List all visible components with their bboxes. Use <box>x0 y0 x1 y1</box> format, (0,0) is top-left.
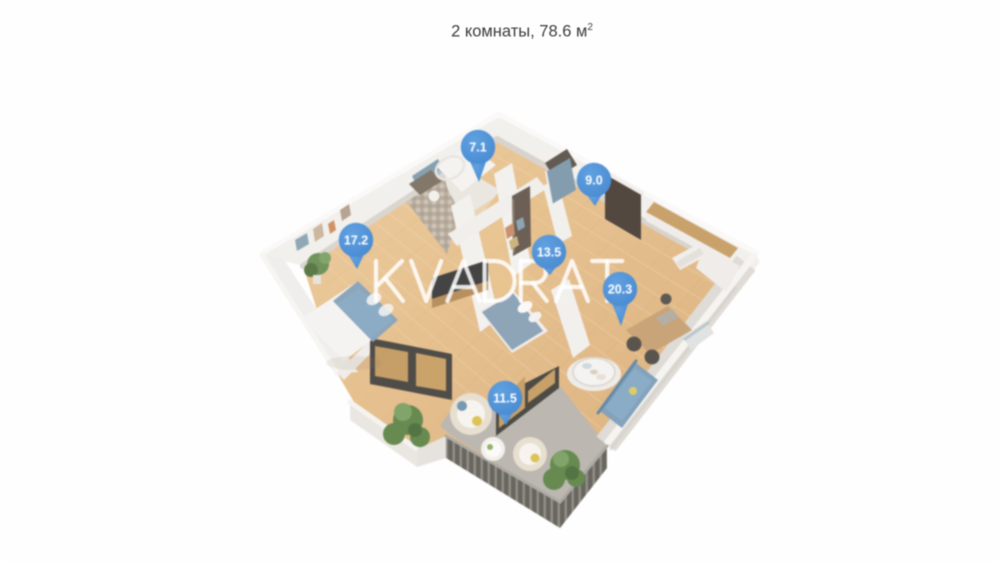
svg-text:11.5: 11.5 <box>493 392 517 406</box>
svg-text:13.5: 13.5 <box>537 246 561 260</box>
svg-text:20.3: 20.3 <box>608 283 632 297</box>
svg-text:7.1: 7.1 <box>469 141 486 155</box>
svg-text:17.2: 17.2 <box>344 234 368 248</box>
svg-text:9.0: 9.0 <box>585 174 602 188</box>
